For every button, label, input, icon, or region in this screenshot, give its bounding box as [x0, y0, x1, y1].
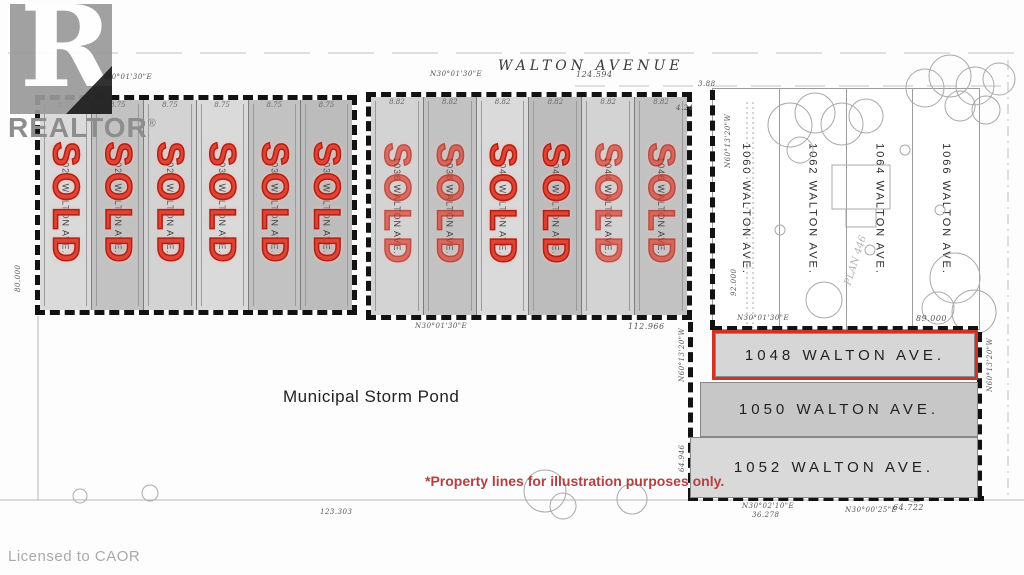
bearing-south-1: N30°02'10"E — [742, 502, 794, 510]
sold-stamp: SOLD — [640, 143, 682, 270]
lot-width-dim: 8.82 — [600, 98, 616, 106]
lot-width-dim: 8.82 — [442, 98, 458, 106]
sold-stamp: SOLD — [587, 143, 629, 270]
bearing-south-2: N30°00'25"E — [845, 506, 897, 514]
realtor-logo: R REALTOR® — [8, 4, 158, 139]
lot-1064: 1064 WALTON AVE. — [846, 89, 913, 329]
distance-89: 89.000 — [916, 314, 947, 323]
lot-address: 1064 WALTON AVE. — [873, 143, 885, 275]
lot-width-dim: 8.75 — [214, 101, 230, 109]
distance-80-west: 80.000 — [14, 265, 22, 293]
lot-width-dim: 8.82 — [653, 98, 669, 106]
sold-stamp: SOLD — [149, 142, 191, 269]
sold-stamp: SOLD — [201, 142, 243, 269]
lot-width-dim: 8.75 — [319, 101, 335, 109]
license-attribution: Licensed to CAOR — [8, 548, 140, 565]
site-plan-canvas: 8.75 1024 WALTON AVE. SOLD 8.75 1026 WAL… — [0, 0, 1024, 575]
lot-block-centre: 8.82 1036 WALTON AVE. SOLD 8.82 1038 WAL… — [366, 92, 692, 320]
distance-123: 123.303 — [320, 508, 352, 516]
sold-stamp: SOLD — [534, 143, 576, 270]
bearing-n60-north: N60°13'20"W — [724, 114, 732, 168]
lot-1040: 8.82 1040 WALTON AVE. SOLD — [476, 97, 529, 315]
lot-address: 1060 WALTON AVE. — [740, 143, 752, 275]
sold-stamp: SOLD — [376, 143, 418, 270]
lot-1038: 8.82 1038 WALTON AVE. SOLD — [423, 97, 476, 315]
distance-64-722: 64.722 — [893, 503, 924, 512]
lot-width-dim: 8.82 — [548, 98, 564, 106]
distance-3-88: 3.88 — [698, 80, 716, 88]
lot-width-dim: 8.82 — [495, 98, 511, 106]
lot-1066: 1066 WALTON AVE. — [912, 89, 979, 329]
lot-1032: 8.75 1032 WALTON AVE. SOLD — [248, 100, 300, 310]
distance-4-24: 4.24 — [676, 104, 694, 112]
bearing-n60-centre: N60°13'20"W — [678, 328, 686, 382]
sold-stamp: SOLD — [429, 143, 471, 270]
boundary-dashed-west-of-east-block — [710, 90, 715, 330]
distance-south-centre: 112.966 — [628, 322, 665, 331]
lot-block-east: 1060 WALTON AVE. 1062 WALTON AVE. 1064 W… — [712, 88, 980, 330]
sold-stamp: SOLD — [482, 143, 524, 270]
lot-1030: 8.75 1030 WALTON AVE. SOLD — [196, 100, 248, 310]
lot-width-dim: 8.75 — [266, 101, 282, 109]
lot-1052: 1052 WALTON AVE. — [690, 437, 978, 498]
storm-pond-label: Municipal Storm Pond — [283, 387, 459, 407]
distance-64-946: 64.946 — [678, 445, 686, 473]
lot-1062: 1062 WALTON AVE. — [779, 89, 846, 329]
bearing-n60-east: N60°13'20"W — [986, 338, 994, 392]
sold-stamp: SOLD — [45, 142, 87, 269]
bearing-top-centre: N30°01'30"E — [430, 70, 482, 78]
bearing-south-east-block: N30°01'30"E — [737, 314, 789, 322]
sold-stamp: SOLD — [305, 142, 347, 269]
lot-1036: 8.82 1036 WALTON AVE. SOLD — [371, 97, 423, 315]
lot-1048-highlighted: 1048 WALTON AVE. — [712, 330, 978, 380]
lot-address: 1048 WALTON AVE. — [745, 347, 945, 364]
registered-trademark-symbol: ® — [148, 118, 157, 130]
distance-top-centre: 124.594 — [576, 70, 613, 79]
lot-width-dim: 8.75 — [162, 101, 178, 109]
lot-1044: 8.82 1044 WALTON AVE. SOLD — [581, 97, 634, 315]
distance-92-east-block: 92.000 — [730, 269, 738, 297]
lot-1060: 1060 WALTON AVE. — [713, 89, 779, 329]
bearing-south-centre: N30°01'30"E — [415, 322, 467, 330]
distance-36-278: 36.278 — [752, 511, 780, 519]
lot-address: 1052 WALTON AVE. — [734, 459, 934, 476]
lot-address: 1062 WALTON AVE. — [807, 143, 819, 275]
sold-stamp: SOLD — [253, 142, 295, 269]
lot-1046: 8.82 1046 WALTON AVE. SOLD — [634, 97, 687, 315]
sold-stamp: SOLD — [97, 142, 139, 269]
lot-1050: 1050 WALTON AVE. — [700, 382, 978, 437]
disclaimer-note: *Property lines for illustration purpose… — [425, 473, 724, 489]
lot-address: 1050 WALTON AVE. — [739, 401, 939, 418]
realtor-wordmark: REALTOR® — [8, 112, 157, 144]
lot-1042: 8.82 1042 WALTON AVE. SOLD — [528, 97, 581, 315]
lot-address: 1066 WALTON AVE. — [940, 143, 952, 275]
lot-1034: 8.75 1034 WALTON AVE. SOLD — [300, 100, 352, 310]
lot-width-dim: 8.82 — [389, 98, 405, 106]
